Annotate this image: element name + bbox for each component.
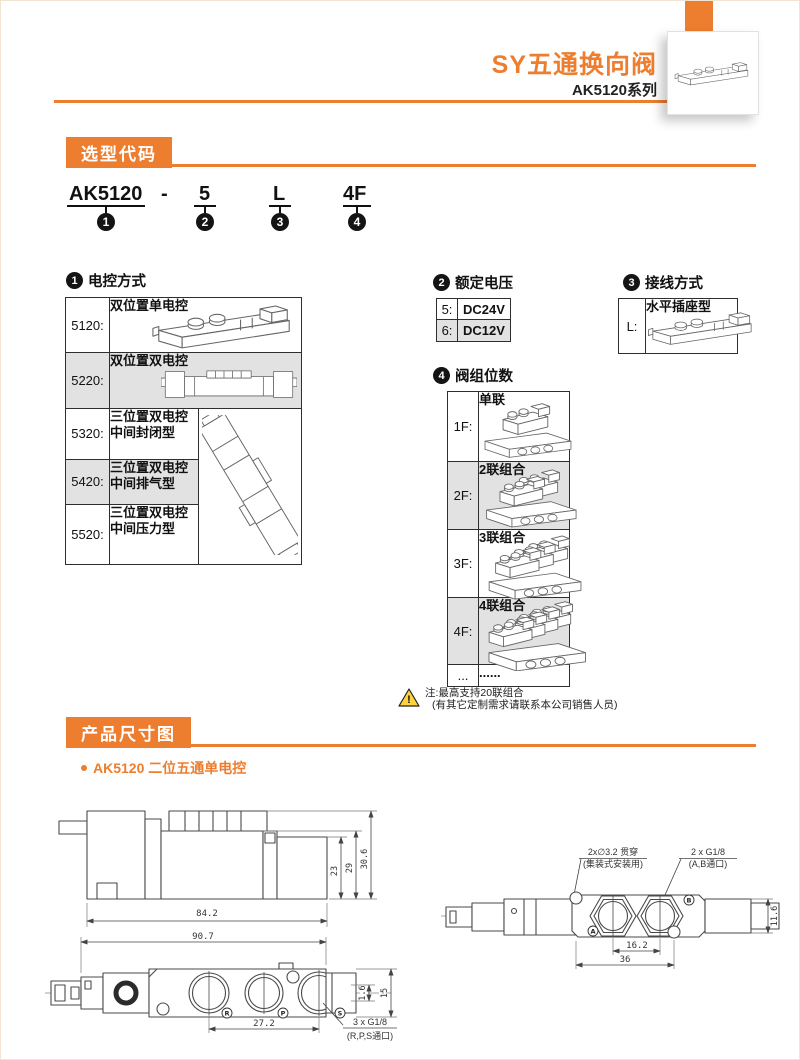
circle-2-badge: 2 [433, 274, 450, 291]
table-voltage: 5: DC24V 6: DC12V [436, 298, 511, 342]
dim-body-height: 11.6 [770, 906, 780, 926]
manifold-illustration-1 [483, 399, 577, 459]
note-line2: (有其它定制需求请联系本公司销售人员) [432, 699, 618, 712]
manifold-illustration-3 [485, 531, 591, 600]
label-through-holes: 2x∅3.2 贯穿 [588, 846, 638, 857]
marker-circle-3: 3 [271, 213, 289, 231]
bottom-view-drawing: 90.7 R P S 2 [39, 929, 404, 1056]
valve-photo-illustration [674, 52, 752, 94]
model-code-wiring: L [273, 183, 285, 206]
valve-illustration-3position [202, 409, 298, 561]
stations-code-1F: 1F: [448, 392, 479, 462]
label-ab-ports: 2 x G1/8 [691, 847, 725, 857]
bullet-dot-icon [81, 765, 87, 771]
model-code-dash: - [161, 183, 168, 206]
stations-code-3F: 3F: [448, 530, 479, 598]
control-desc-5420: 三位置双电控 中间排气型 [110, 459, 199, 505]
circle-4-badge: 4 [433, 367, 450, 384]
stations-code-2F: 2F: [448, 462, 479, 530]
dim-side-h3: 30.6 [360, 849, 370, 869]
dim-port-pitch-bottom: 27.2 [253, 1019, 275, 1029]
table-row: 5: DC24V [437, 299, 511, 320]
dim-side-h2: 29 [345, 863, 355, 873]
label-rps-ports-2: (R,P,S通口) [347, 1031, 393, 1041]
table-stations-header: 4 阀组位数 [433, 365, 513, 386]
header-rule [54, 100, 756, 103]
label-through-holes-2: (集装式安装用) [583, 858, 643, 869]
datasheet-page: SY五通换向阀 AK5120系列 选型代码 AK5120 - 5 L 4F 1 … [0, 0, 800, 1060]
table-voltage-header: 2 额定电压 [433, 272, 513, 293]
page-title: SY五通换向阀 [492, 45, 657, 81]
manifold-illustration-2 [483, 465, 583, 528]
control-code-5120: 5120: [66, 298, 110, 353]
product-subtitle: AK5120 二位五通单电控 [81, 758, 246, 778]
tick-1 [105, 205, 107, 213]
port-badge-s: S [338, 1010, 343, 1018]
desc-line2: 中间排气型 [110, 476, 198, 492]
table-voltage-title: 额定电压 [455, 272, 513, 293]
port-badge-r: R [224, 1010, 229, 1018]
control-code-5420: 5420: [66, 459, 110, 505]
dim-side-h1: 23 [330, 866, 340, 876]
valve-3pos-cell [199, 409, 302, 565]
warning-icon: ! [398, 688, 420, 707]
desc-line1: 三位置双电控 [110, 460, 198, 476]
table-row: 6: DC12V [437, 320, 511, 342]
table-wiring-title: 接线方式 [645, 272, 703, 293]
table-row: 5320: 三位置双电控 中间封闭型 [66, 409, 302, 460]
top-view-drawing: 2x∅3.2 贯穿 (集装式安装用) 2 x G1/8 (A,B通口) [441, 841, 786, 976]
dim-port-pitch: 16.2 [626, 941, 648, 951]
note-line1: 注:最高支持20联组合 [425, 687, 524, 700]
section-header-dimensions: 产品尺寸图 [66, 717, 191, 748]
voltage-code-5: 5: [437, 299, 458, 320]
control-desc-5320: 三位置双电控 中间封闭型 [110, 409, 199, 460]
series-subtitle: AK5120系列 [572, 79, 657, 100]
desc-line1: 三位置双电控 [110, 409, 198, 425]
desc-line1: 三位置双电控 [110, 505, 198, 521]
model-code-stations: 4F [343, 183, 366, 206]
circle-1-badge: 1 [66, 272, 83, 289]
stations-code-more: ... [448, 665, 479, 687]
model-code-voltage: 5 [199, 183, 210, 206]
table-wiring-header: 3 接线方式 [623, 272, 703, 293]
corner-accent-tab [685, 1, 713, 31]
marker-circle-4: 4 [348, 213, 366, 231]
port-badge-b: B [687, 897, 692, 905]
svg-text:!: ! [407, 694, 411, 706]
circle-3-badge: 3 [623, 274, 640, 291]
stations-code-4F: 4F: [448, 598, 479, 665]
dim-plate-height: 15 [380, 988, 390, 998]
label-ab-ports-2: (A,B通口) [689, 859, 728, 869]
dim-total-length: 90.7 [192, 932, 214, 942]
manifold-illustration-4 [483, 597, 595, 671]
table-control-title: 电控方式 [88, 270, 146, 291]
dim-hole-span: 36 [620, 955, 631, 965]
tick-4 [356, 205, 358, 213]
marker-circle-1: 1 [97, 213, 115, 231]
port-badge-a: A [590, 928, 595, 936]
desc-line2: 中间压力型 [110, 521, 198, 537]
voltage-code-6: 6: [437, 320, 458, 342]
model-code-base: AK5120 [69, 183, 142, 206]
side-view-drawing: 84.2 23 29 30.6 [51, 785, 391, 935]
tick-2 [204, 205, 206, 213]
tick-3 [279, 205, 281, 213]
valve-illustration-single [151, 301, 297, 350]
table-stations-title: 阀组位数 [455, 365, 513, 386]
voltage-value-5: DC24V [458, 299, 511, 320]
label-rps-ports: 3 x G1/8 [353, 1017, 387, 1027]
product-subtitle-label: AK5120 二位五通单电控 [93, 758, 246, 778]
wiring-code-L: L: [619, 299, 646, 354]
control-code-5320: 5320: [66, 409, 110, 460]
section-header-selection: 选型代码 [66, 137, 172, 168]
product-thumbnail [667, 31, 759, 115]
marker-circle-2: 2 [196, 213, 214, 231]
table-control-header: 1 电控方式 [66, 270, 146, 291]
desc-line2: 中间封闭型 [110, 425, 198, 441]
control-code-5220: 5220: [66, 353, 110, 409]
dim-offset: 1.6 [358, 985, 368, 1000]
dim-side-length: 84.2 [196, 909, 218, 919]
control-code-5520: 5520: [66, 505, 110, 565]
valve-illustration-wiring [647, 309, 757, 346]
port-badge-p: P [281, 1010, 286, 1018]
voltage-value-6: DC12V [458, 320, 511, 342]
valve-illustration-double [161, 365, 297, 404]
control-desc-5520: 三位置双电控 中间压力型 [110, 505, 199, 565]
